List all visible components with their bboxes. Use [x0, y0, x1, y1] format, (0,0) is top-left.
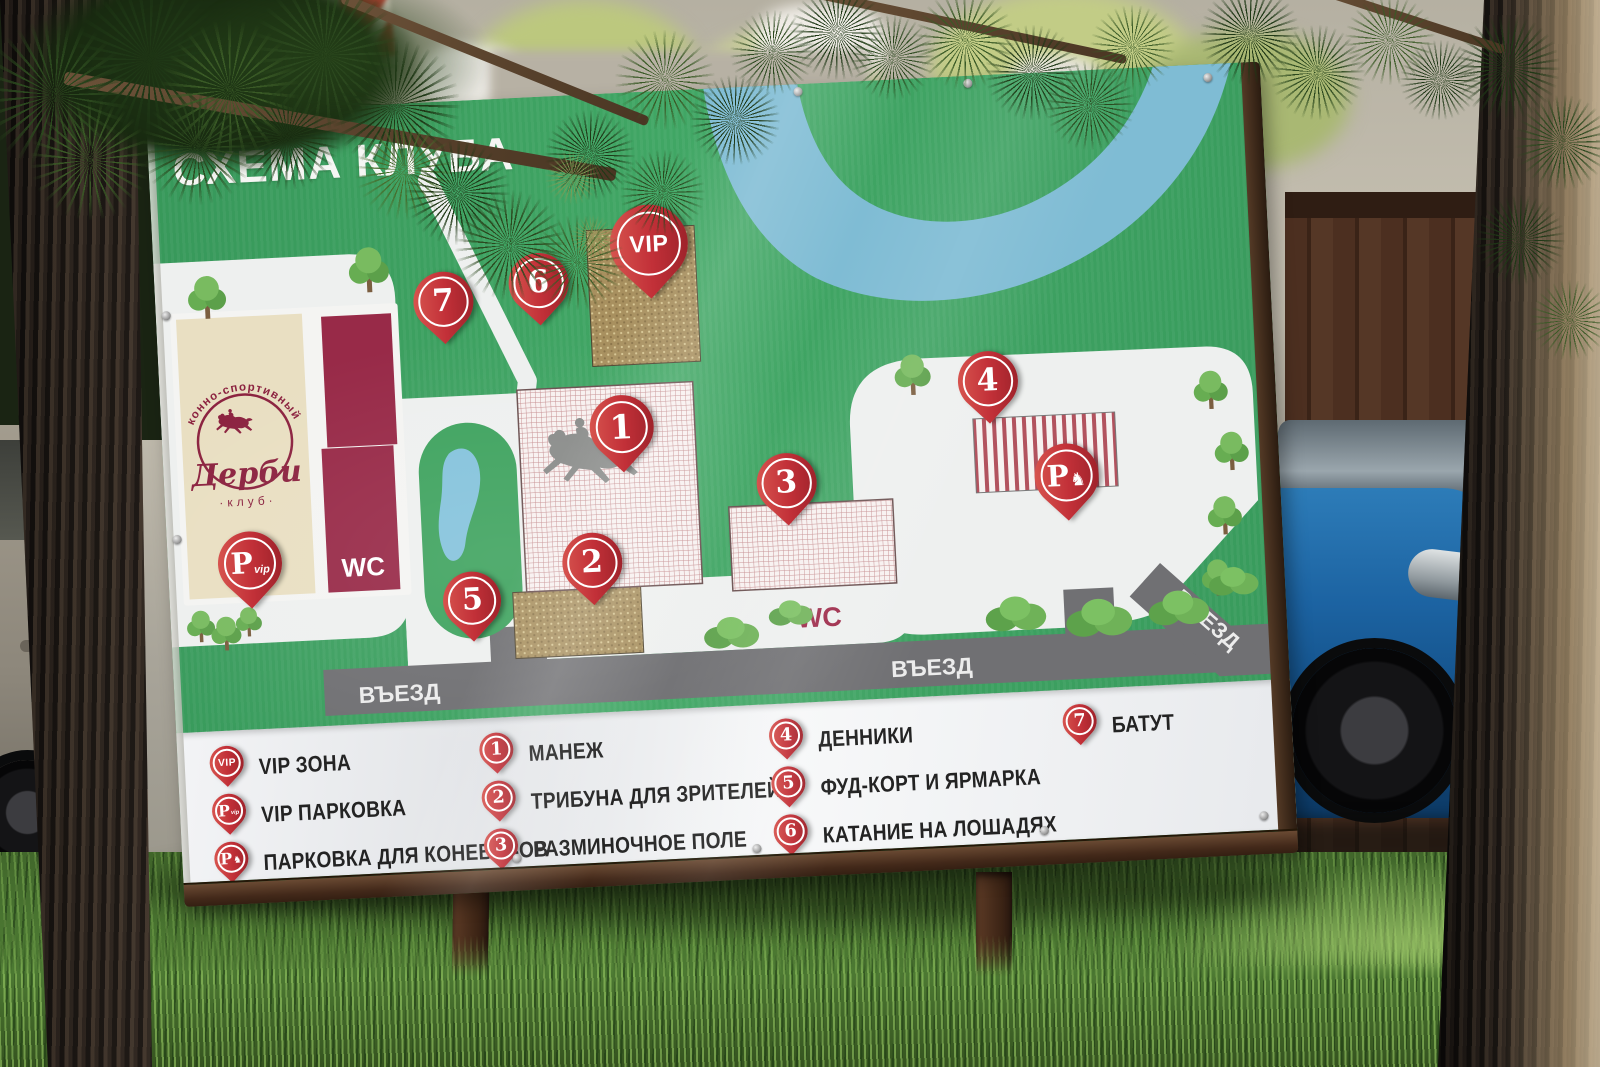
map-pin-p-vip: Pvip [216, 530, 283, 597]
club-map-sign: ВЪЕЗД ВЪЕЗД ВЪЕЗД WC [146, 62, 1298, 908]
pin-1-icon: 1 [472, 726, 520, 774]
logo-sub: ·клуб· [219, 493, 277, 510]
map-pin-p-horse: P♞ [1033, 442, 1100, 509]
horse-icon: ♞ [233, 855, 242, 865]
legend-item-stalls: 4 ДЕННИКИ [768, 711, 931, 765]
map-pin-vip: VIP [608, 203, 690, 285]
entrance-label-right: ВЪЕЗД [890, 652, 973, 682]
map-pin-2: 2 [561, 531, 624, 594]
fore-grass [0, 935, 1600, 1067]
legend-item-vip-parking: Pvip VIP ПАРКОВКА [211, 784, 433, 841]
entrance-label-left: ВЪЕЗД [358, 678, 441, 708]
warmup-field-rect [729, 499, 897, 591]
horse-icon: ♞ [1070, 470, 1087, 489]
logo-name: Дерби [189, 454, 303, 494]
legend-item-trampoline: 7 БАТУТ [1062, 699, 1187, 751]
legend-item-arena: 1 МАНЕЖ [479, 727, 618, 780]
blue-car-wheel [1292, 648, 1457, 813]
russian-flag [251, 2, 318, 82]
tribune-rect [513, 586, 644, 658]
pin-7-icon: 7 [1056, 697, 1104, 745]
map-pin-4: 4 [957, 350, 1020, 413]
pin-5-icon: 5 [764, 759, 812, 807]
map-pin-1: 1 [588, 394, 655, 461]
pin-2-icon: 2 [475, 774, 523, 822]
river [703, 63, 1241, 311]
p-horse-pin-icon: P♞ [207, 835, 255, 883]
wc-building-label: WC [341, 551, 386, 583]
pin-4-icon: 4 [762, 711, 810, 759]
map-pin-6: 6 [507, 252, 570, 315]
red-flag [339, 0, 395, 60]
map-pin-7: 7 [412, 270, 475, 333]
pin-6-icon: 6 [767, 807, 815, 855]
map-pin-5: 5 [442, 570, 503, 631]
vip-pin-icon: VIP [203, 739, 251, 787]
legend-item-vip-zone: VIP VIP ЗОНА [209, 739, 368, 793]
map-pin-3: 3 [755, 452, 818, 515]
p-vip-pin-icon: Pvip [205, 787, 253, 835]
sign-banner: ВЪЕЗД ВЪЕЗД ВЪЕЗД WC [146, 62, 1298, 908]
photo-of-club-map-sign: ВЪЕЗД ВЪЕЗД ВЪЕЗД WC [0, 0, 1600, 1067]
building-top [321, 313, 397, 447]
